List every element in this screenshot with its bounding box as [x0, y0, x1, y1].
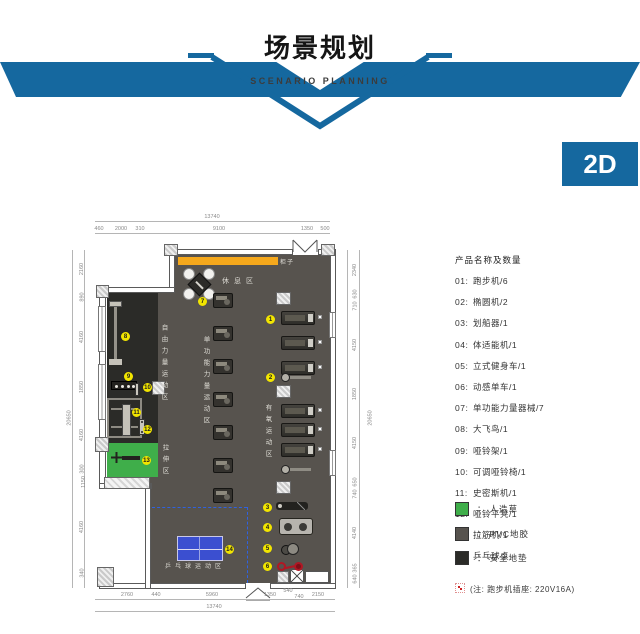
floor-legend: ： 人造草 ： PVC地胶 ： 安全地垫: [455, 502, 635, 576]
dim-label: 640: [353, 574, 359, 583]
treadmill-socket-icon: [318, 447, 322, 451]
socket-note: (注: 跑步机插座: 220V16A): [470, 584, 575, 595]
treadmill-socket-icon: [318, 340, 322, 344]
floor-colon: ：: [477, 503, 486, 515]
tt-area-dash-top: [152, 507, 247, 508]
spin-bike-icon: [277, 560, 303, 573]
dim-label: 1850: [79, 381, 85, 393]
column-annex-top: [96, 285, 109, 298]
dim-label: 2340: [352, 264, 358, 276]
column-inner-3: [276, 481, 291, 494]
dim-line: [95, 611, 335, 612]
dim-bottom-total: 13740: [206, 604, 221, 610]
table-tennis-table-icon: [177, 536, 223, 561]
dim-line: [359, 250, 360, 588]
treadmill-icon: [281, 423, 315, 437]
dim-label: 1850: [352, 388, 358, 400]
strength-machine-icon: [213, 425, 233, 440]
window-left-1: [98, 306, 106, 352]
product-number: 06:: [455, 382, 473, 392]
dim-label: 4160: [79, 331, 85, 343]
zone-rest-label: 休息区: [222, 276, 258, 286]
dim-label: 365: [353, 563, 359, 572]
marker-10: 10: [143, 383, 152, 392]
dim-label: 2000: [115, 226, 127, 232]
door-top-icon: [290, 236, 320, 254]
product-number: 09:: [455, 446, 473, 456]
product-number: 11:: [455, 488, 473, 498]
marker-7: 7: [198, 297, 207, 306]
product-list-item: 11:史密斯机/1: [455, 487, 635, 499]
floor-legend-row: ： 人造草: [455, 502, 635, 516]
wall-left-lower: [145, 483, 151, 589]
dim-label: 1150: [81, 476, 87, 488]
cabinet-bar: [178, 257, 278, 265]
dim-label: 2150: [312, 592, 324, 598]
column-top-left: [164, 244, 178, 256]
strength-machine-icon: [213, 293, 233, 308]
marker-12: 12: [143, 425, 152, 434]
dim-line: [95, 233, 330, 234]
column-inner-2: [276, 385, 291, 398]
strength-machine-icon: [213, 488, 233, 503]
dim-top-total: 13740: [204, 214, 219, 220]
product-list-item: 08:大飞鸟/1: [455, 423, 635, 435]
marker-3: 3: [263, 503, 272, 512]
smith-machine-icon: [107, 398, 142, 438]
window-sill-bench: [104, 477, 150, 489]
column-annex-mid: [95, 437, 109, 452]
product-label: 史密斯机/1: [473, 488, 517, 498]
page-title: 场景规划: [0, 28, 640, 65]
product-label: 动感单车/1: [473, 382, 517, 392]
column-top-right: [321, 244, 335, 256]
floor-label: 人造草: [490, 503, 519, 515]
product-number: 05:: [455, 361, 473, 371]
dim-label: 440: [151, 592, 160, 598]
treadmill-socket-icon: [318, 408, 322, 412]
dim-left-total: 20650: [67, 410, 73, 425]
rest-table-group: [183, 266, 216, 301]
dim-label: 300: [80, 464, 86, 473]
dumbbell-rack-icon: [111, 381, 137, 390]
floor-label: PVC地胶: [490, 528, 529, 540]
cable-crossover-icon: [109, 301, 122, 365]
dim-label: 310: [135, 226, 144, 232]
wall-annex-top: [99, 287, 175, 293]
closet-box: [305, 571, 329, 583]
product-label: 跑步机/6: [473, 276, 508, 286]
product-label: 可调哑铃椅/1: [473, 467, 526, 477]
zone-single-strength-label: 单功能力量运动区: [200, 336, 210, 458]
treadmill-icon: [281, 404, 315, 418]
floor-swatch: [455, 551, 469, 565]
window-right-2: [329, 450, 336, 476]
product-list-item: 05:立式健身车/1: [455, 360, 635, 372]
floor-legend-row: ： PVC地胶: [455, 527, 635, 541]
column-inner-1: [276, 292, 291, 305]
window-left-2: [98, 364, 106, 420]
product-list-item: 06:动感单车/1: [455, 381, 635, 393]
dim-label: 4160: [79, 521, 85, 533]
dim-label: 9100: [213, 226, 225, 232]
column-bottom-left: [97, 567, 114, 587]
cabinet-label: 柜子: [280, 257, 294, 266]
dim-label: 740: [353, 489, 359, 498]
rowing-machine-icon: [276, 502, 308, 510]
dim-label: 2160: [79, 263, 85, 275]
treadmill-socket-icon: [318, 427, 322, 431]
marker-11: 11: [132, 408, 141, 417]
dim-label: 1350: [264, 592, 276, 598]
product-label: 单功能力量器械/7: [473, 403, 544, 413]
elliptical-icon: [280, 464, 313, 475]
product-label: 椭圆机/2: [473, 297, 508, 307]
floor-colon: ：: [477, 528, 486, 540]
product-number: 02:: [455, 297, 473, 307]
elliptical-icon: [280, 372, 313, 383]
wall-top-left: [168, 249, 293, 255]
floor-colon: ：: [477, 552, 486, 564]
floor-label: 安全地垫: [490, 552, 528, 564]
dim-label: 500: [320, 226, 329, 232]
product-number: 04:: [455, 340, 473, 350]
dim-label: 2760: [121, 592, 133, 598]
product-number: 07:: [455, 403, 473, 413]
product-number: 10:: [455, 467, 473, 477]
dim-line: [95, 221, 330, 222]
dim-label: 890: [80, 292, 86, 301]
dim-label: 4140: [352, 527, 358, 539]
wall-bottom-right: [270, 583, 336, 589]
floor-swatch: [455, 527, 469, 541]
dim-label: 4150: [352, 437, 358, 449]
dim-label: 540: [283, 588, 292, 594]
window-right-1: [329, 312, 336, 338]
socket-legend-icon: [455, 583, 465, 593]
dim-label: 4150: [352, 339, 358, 351]
product-list-title: 产品名称及数量: [455, 254, 522, 266]
dim-line: [347, 250, 348, 588]
upright-bike-icon: [281, 542, 301, 556]
zone-free-weight-label: 自由力量运动区: [158, 324, 168, 436]
treadmill-icon: [281, 443, 315, 457]
page-subtitle: SCENARIO PLANNING: [0, 76, 640, 86]
floor-swatch: [455, 502, 469, 516]
zone-stretch-label: 拉伸区: [159, 444, 169, 484]
dim-right-total: 20650: [368, 410, 374, 425]
marker-4: 4: [263, 523, 272, 532]
strength-machine-icon: [213, 392, 233, 407]
marker-13: 13: [142, 456, 151, 465]
product-list-item: 03:划船器/1: [455, 317, 635, 329]
product-list-item: 02:椭圆机/2: [455, 296, 635, 308]
product-number: 03:: [455, 318, 473, 328]
floor-legend-row: ： 安全地垫: [455, 551, 635, 565]
dim-label: 650: [353, 477, 359, 486]
mode-badge-2d: 2D: [562, 142, 638, 186]
dim-label: 630: [353, 289, 359, 298]
product-label: 体适能机/1: [473, 340, 517, 350]
wall-bottom-left: [99, 583, 246, 589]
dim-label: 4160: [79, 429, 85, 441]
dim-label: 1350: [301, 226, 313, 232]
dim-label: 460: [94, 226, 103, 232]
strength-machine-icon: [213, 326, 233, 341]
treadmill-socket-icon: [318, 365, 322, 369]
tt-area-dash-right: [247, 507, 248, 583]
treadmill-icon: [281, 311, 315, 325]
marker-6: 6: [263, 562, 272, 571]
marker-14: 14: [225, 545, 234, 554]
strength-machine-icon: [213, 359, 233, 374]
dim-label: 340: [80, 568, 86, 577]
adjustable-bench-icon: [135, 383, 139, 396]
product-number: 08:: [455, 424, 473, 434]
product-list-item: 09:哑铃架/1: [455, 445, 635, 457]
product-label: 大飞鸟/1: [473, 424, 508, 434]
dim-label: 740: [294, 594, 303, 600]
marker-8: 8: [121, 332, 130, 341]
product-list-item: 01:跑步机/6: [455, 275, 635, 287]
stretch-machine-icon: [111, 452, 141, 463]
treadmill-icon: [281, 336, 315, 350]
zone-table-tennis-label: 乒乓球运动区: [165, 561, 225, 570]
product-list-item: 07:单功能力量器械/7: [455, 402, 635, 414]
wall-right: [330, 249, 336, 589]
treadmill-socket-icon: [318, 315, 322, 319]
strength-machine-icon: [213, 458, 233, 473]
dim-label: 710: [353, 301, 359, 310]
product-label: 哑铃架/1: [473, 446, 508, 456]
marker-2: 2: [266, 373, 275, 382]
dim-label: 5960: [206, 592, 218, 598]
product-list-item: 04:体适能机/1: [455, 339, 635, 351]
marker-1: 1: [266, 315, 275, 324]
fitness-machine-icon: [279, 518, 313, 535]
zone-aerobic-label: 有氧运动区: [262, 404, 272, 482]
marker-5: 5: [263, 544, 272, 553]
product-number: 01:: [455, 276, 473, 286]
product-list-item: 10:可调哑铃椅/1: [455, 466, 635, 478]
marker-9: 9: [124, 372, 133, 381]
product-label: 立式健身车/1: [473, 361, 526, 371]
product-label: 划船器/1: [473, 318, 508, 328]
